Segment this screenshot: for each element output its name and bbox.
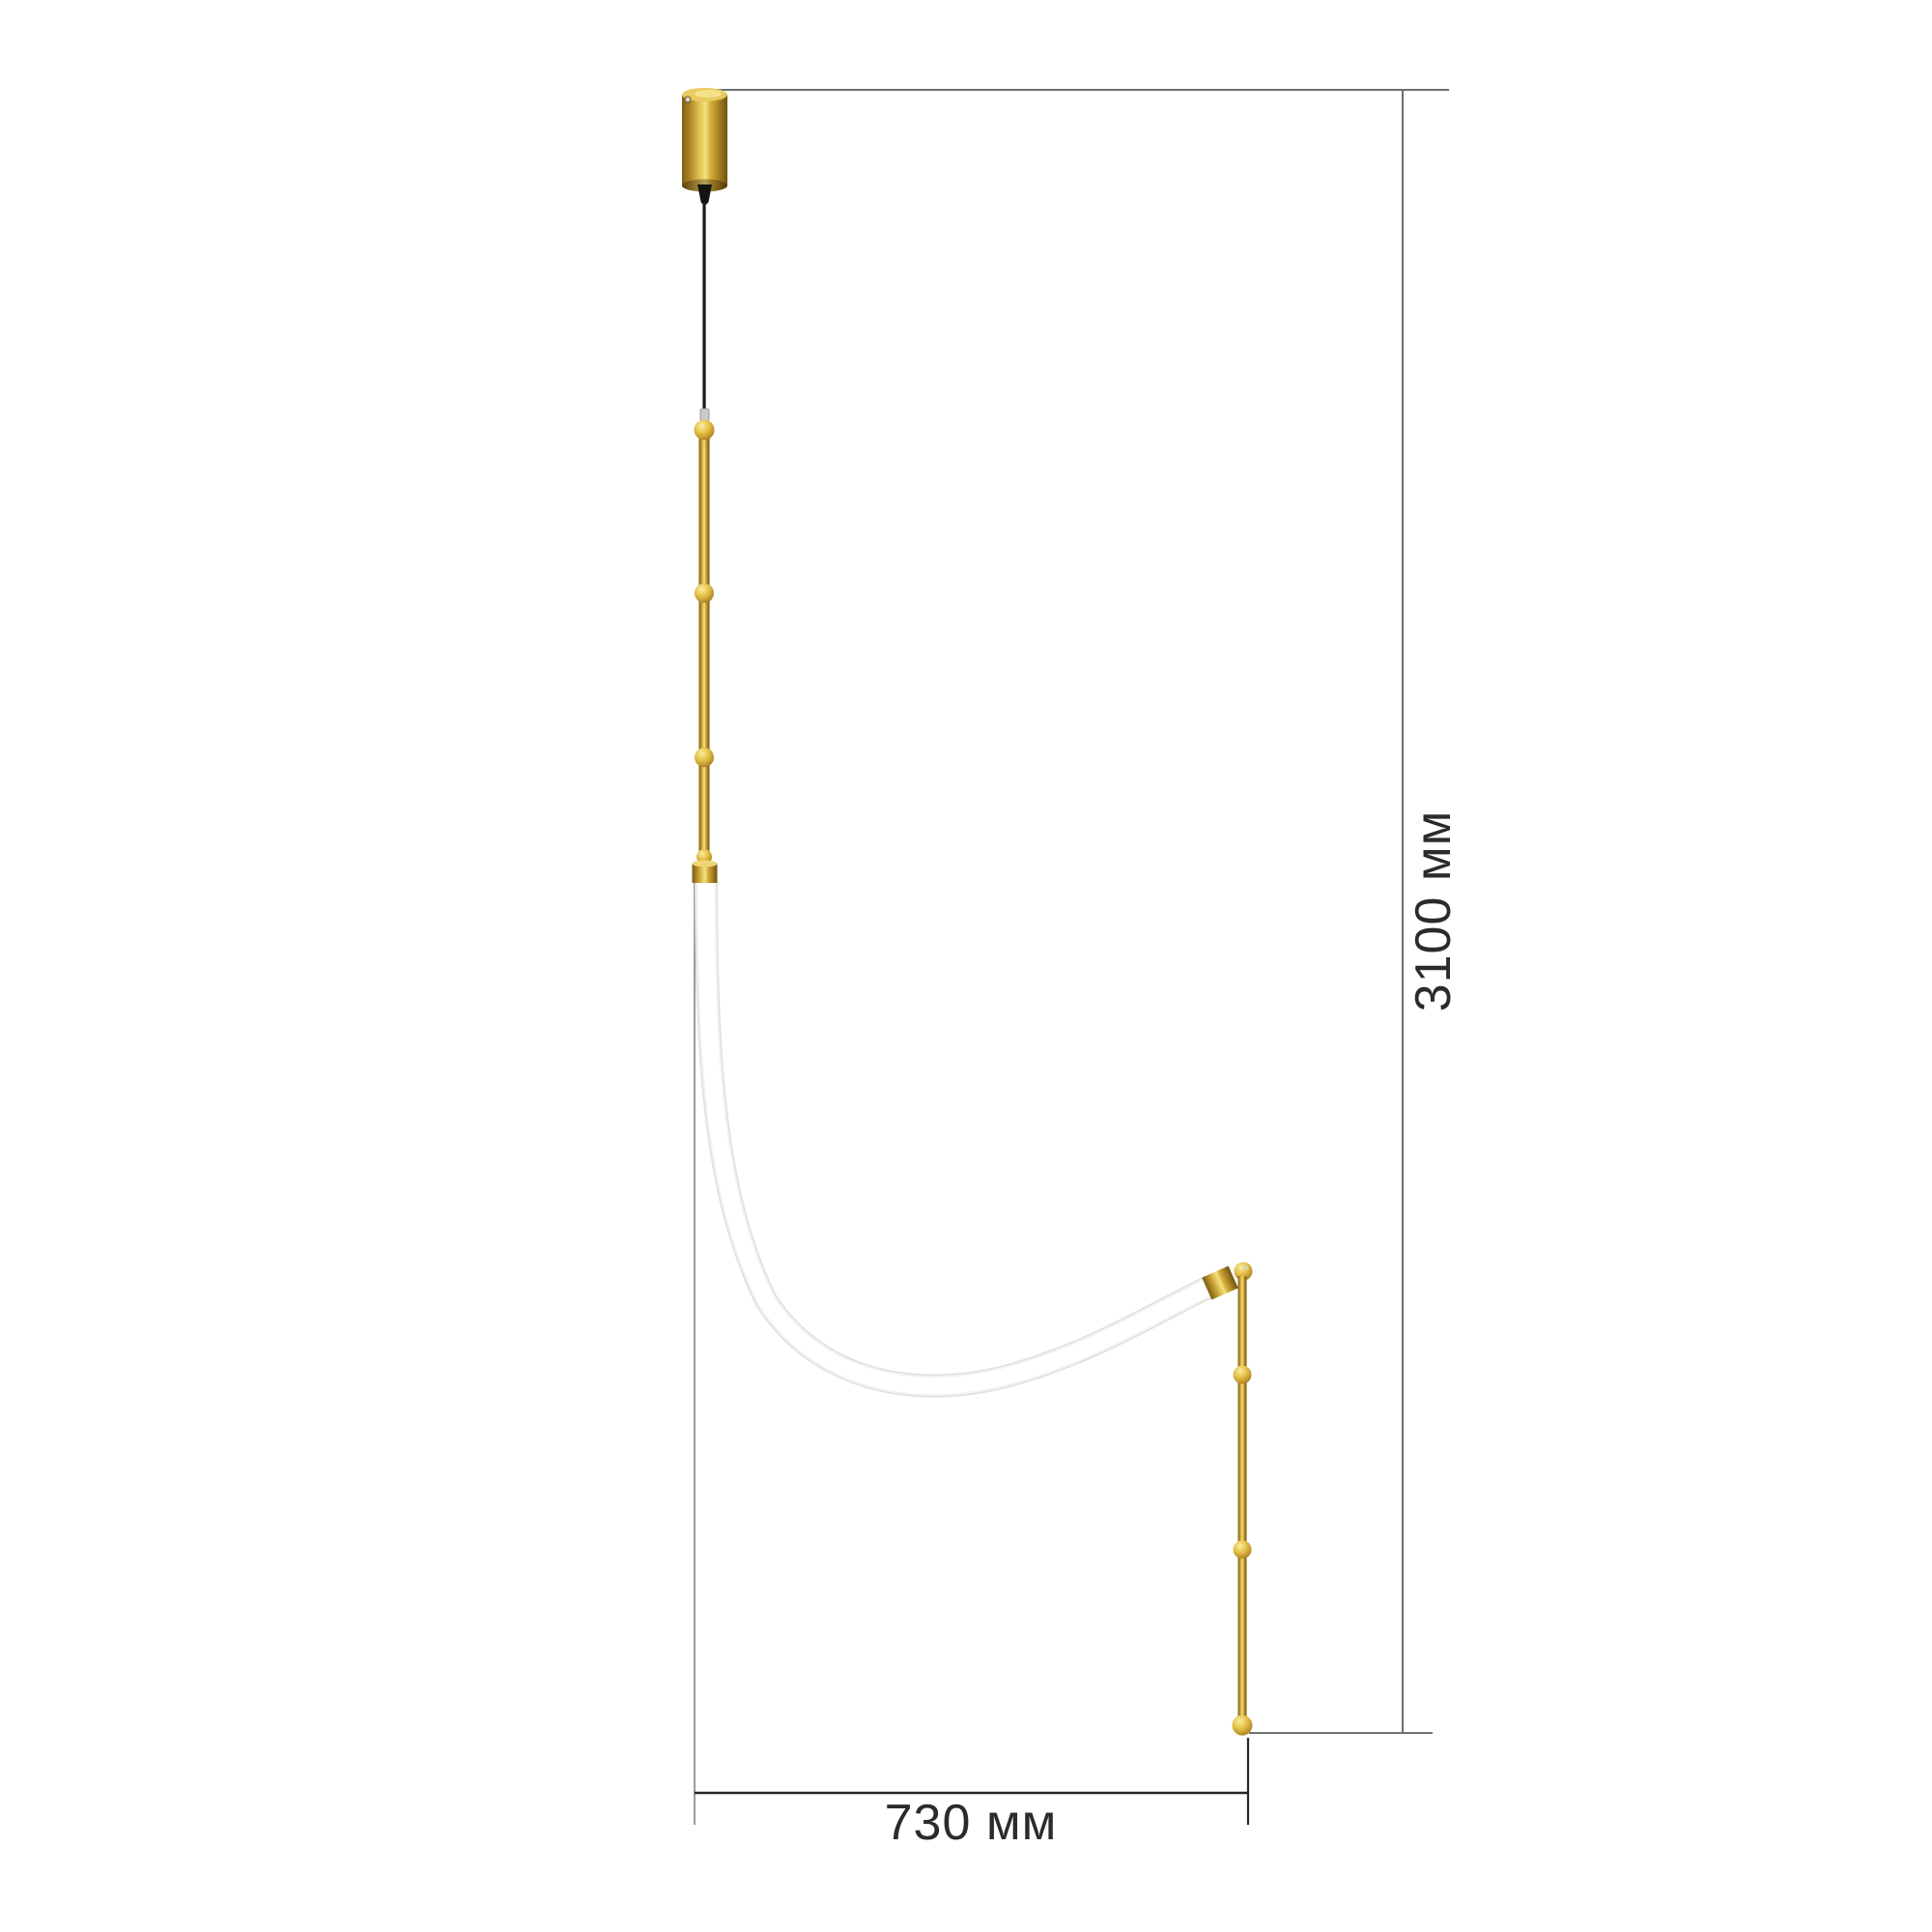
lower-rod-bead-1 (1234, 1366, 1252, 1384)
tube-top-collar-face (693, 861, 718, 867)
canopy-screw (685, 97, 691, 102)
strain-relief-cone (697, 185, 712, 205)
dimension-annotations: 3100 мм 730 мм (695, 90, 1462, 1851)
canopy-body (682, 95, 727, 185)
cable-grip-fitting (700, 409, 709, 421)
upper-rod-shaft (699, 433, 710, 867)
elbow-screw (1244, 1265, 1248, 1269)
canopy-top-highlight (695, 90, 722, 98)
led-flex-tube (706, 885, 1213, 1386)
upper-rod-bead-3 (695, 748, 714, 767)
lower-rod-end-bead (1233, 1716, 1253, 1736)
pendant-lamp-drawing: 3100 мм 730 мм (0, 0, 1932, 1932)
upper-brass-rod (693, 420, 718, 884)
product-drawing-canvas: 3100 мм 730 мм (0, 0, 1932, 1932)
lower-rod-shaft (1238, 1276, 1247, 1720)
width-dimension-label: 730 мм (885, 1795, 1058, 1851)
upper-rod-bead-2 (695, 583, 714, 603)
upper-rod-bead-1 (695, 420, 715, 440)
lower-brass-rod (1233, 1276, 1253, 1736)
lower-rod-bead-2 (1234, 1541, 1252, 1559)
height-dimension-label: 3100 мм (1406, 810, 1462, 1012)
pendant-lamp (682, 88, 1253, 1736)
ceiling-canopy (682, 88, 727, 205)
